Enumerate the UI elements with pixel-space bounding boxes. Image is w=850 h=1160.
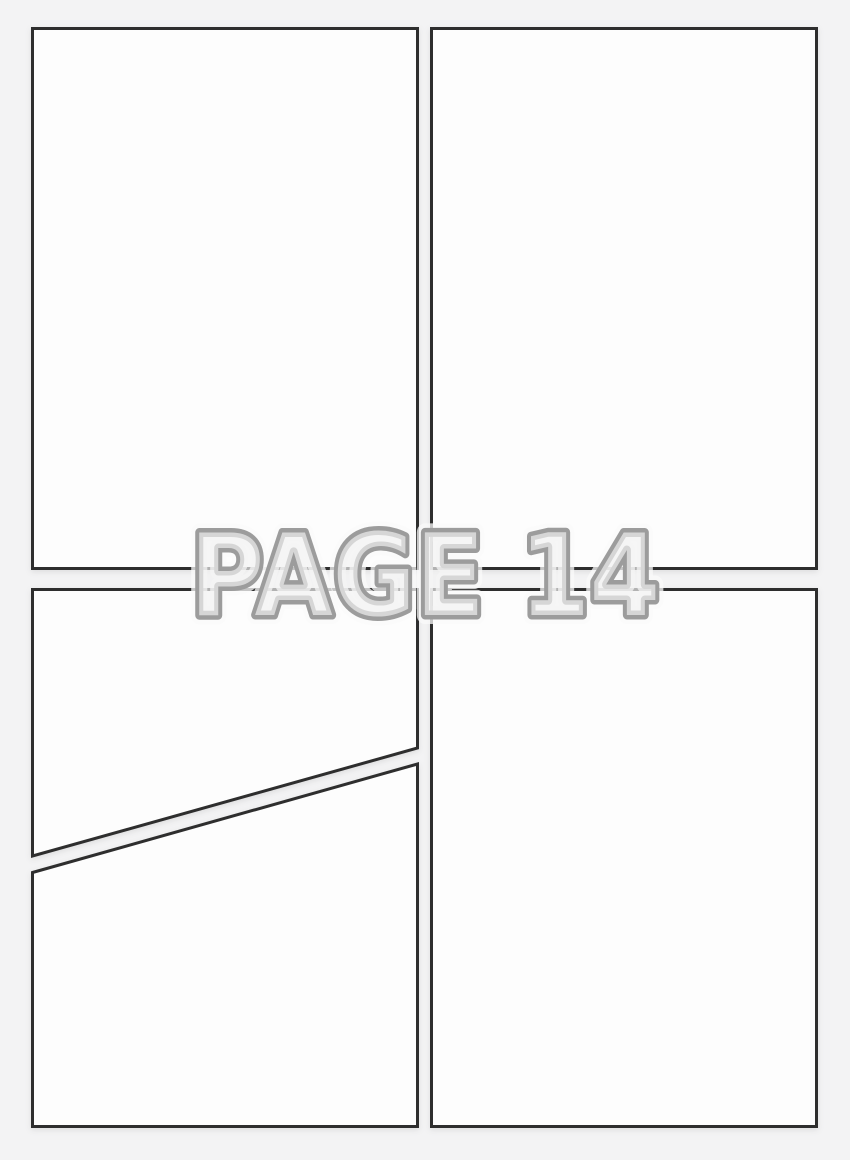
comic-page-template: PAGE 14 PAGE 14 [0,0,850,1160]
comic-page-canvas: PAGE 14 PAGE 14 [0,0,850,1160]
page-label-group: PAGE 14 PAGE 14 [190,510,660,642]
page-number-label: PAGE 14 [190,510,660,642]
panel-bottom-right [432,590,817,1127]
panel-top-right [432,29,817,569]
panel-top-left [33,29,418,569]
